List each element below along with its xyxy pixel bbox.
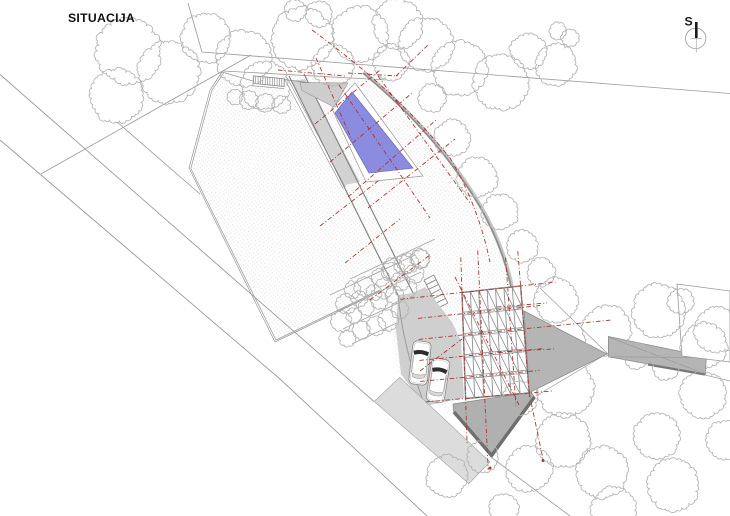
- svg-text:SITUACIJA: SITUACIJA: [68, 11, 135, 25]
- svg-text:S: S: [685, 15, 693, 29]
